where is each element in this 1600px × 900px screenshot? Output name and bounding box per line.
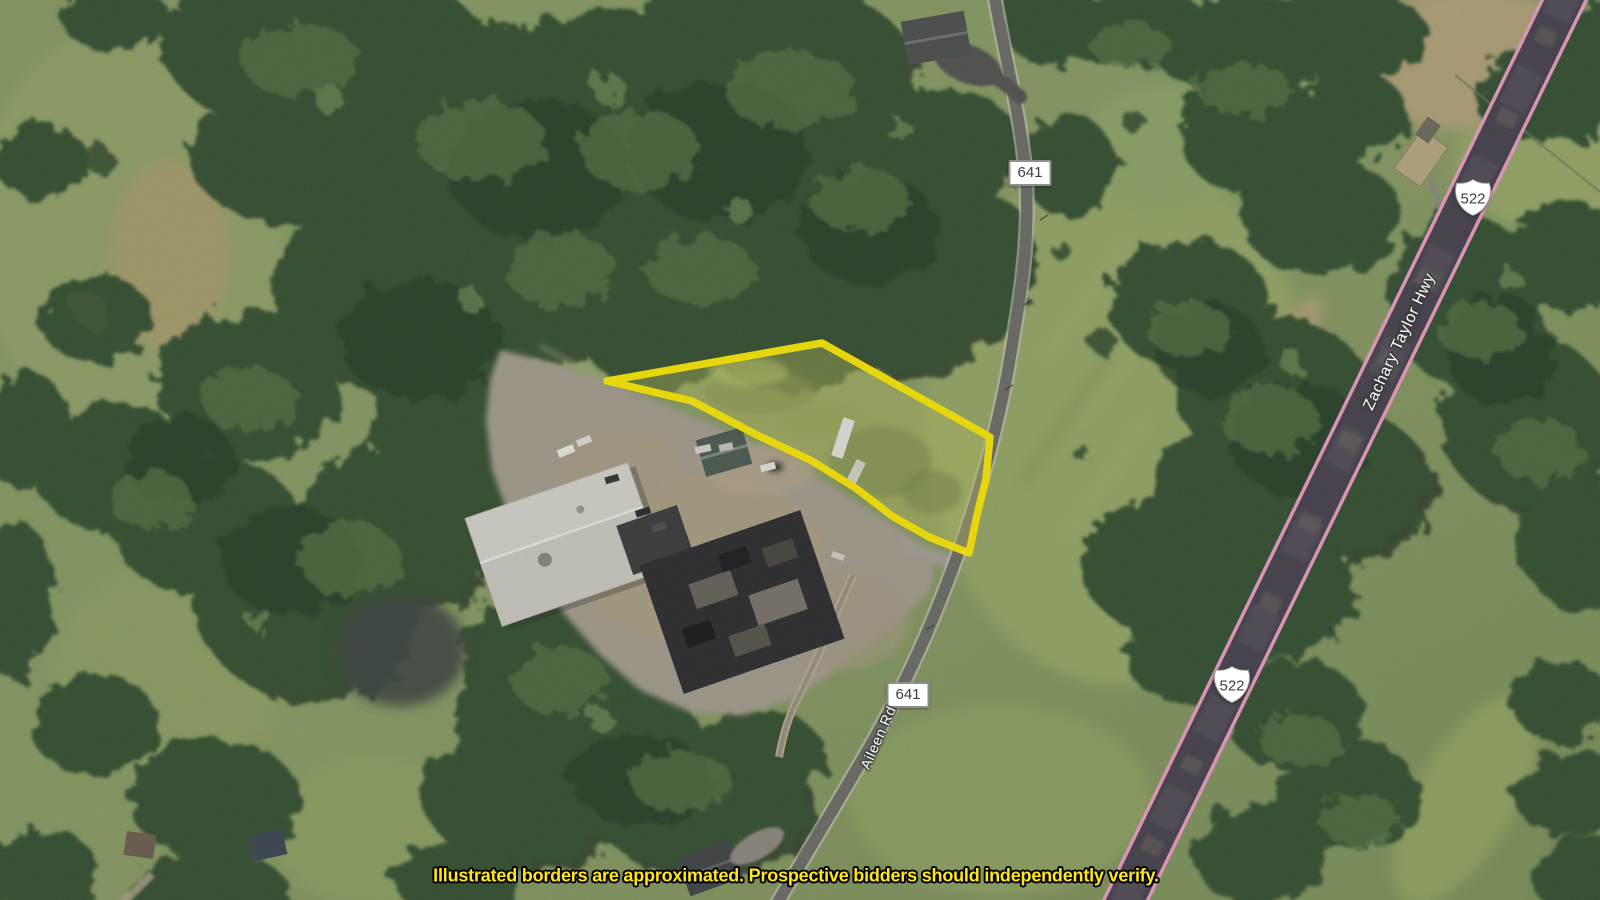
aerial-map: 641 641 522 522 Zachary Taylor Hwy Ailee… xyxy=(0,0,1600,900)
satellite-imagery xyxy=(0,0,1600,900)
